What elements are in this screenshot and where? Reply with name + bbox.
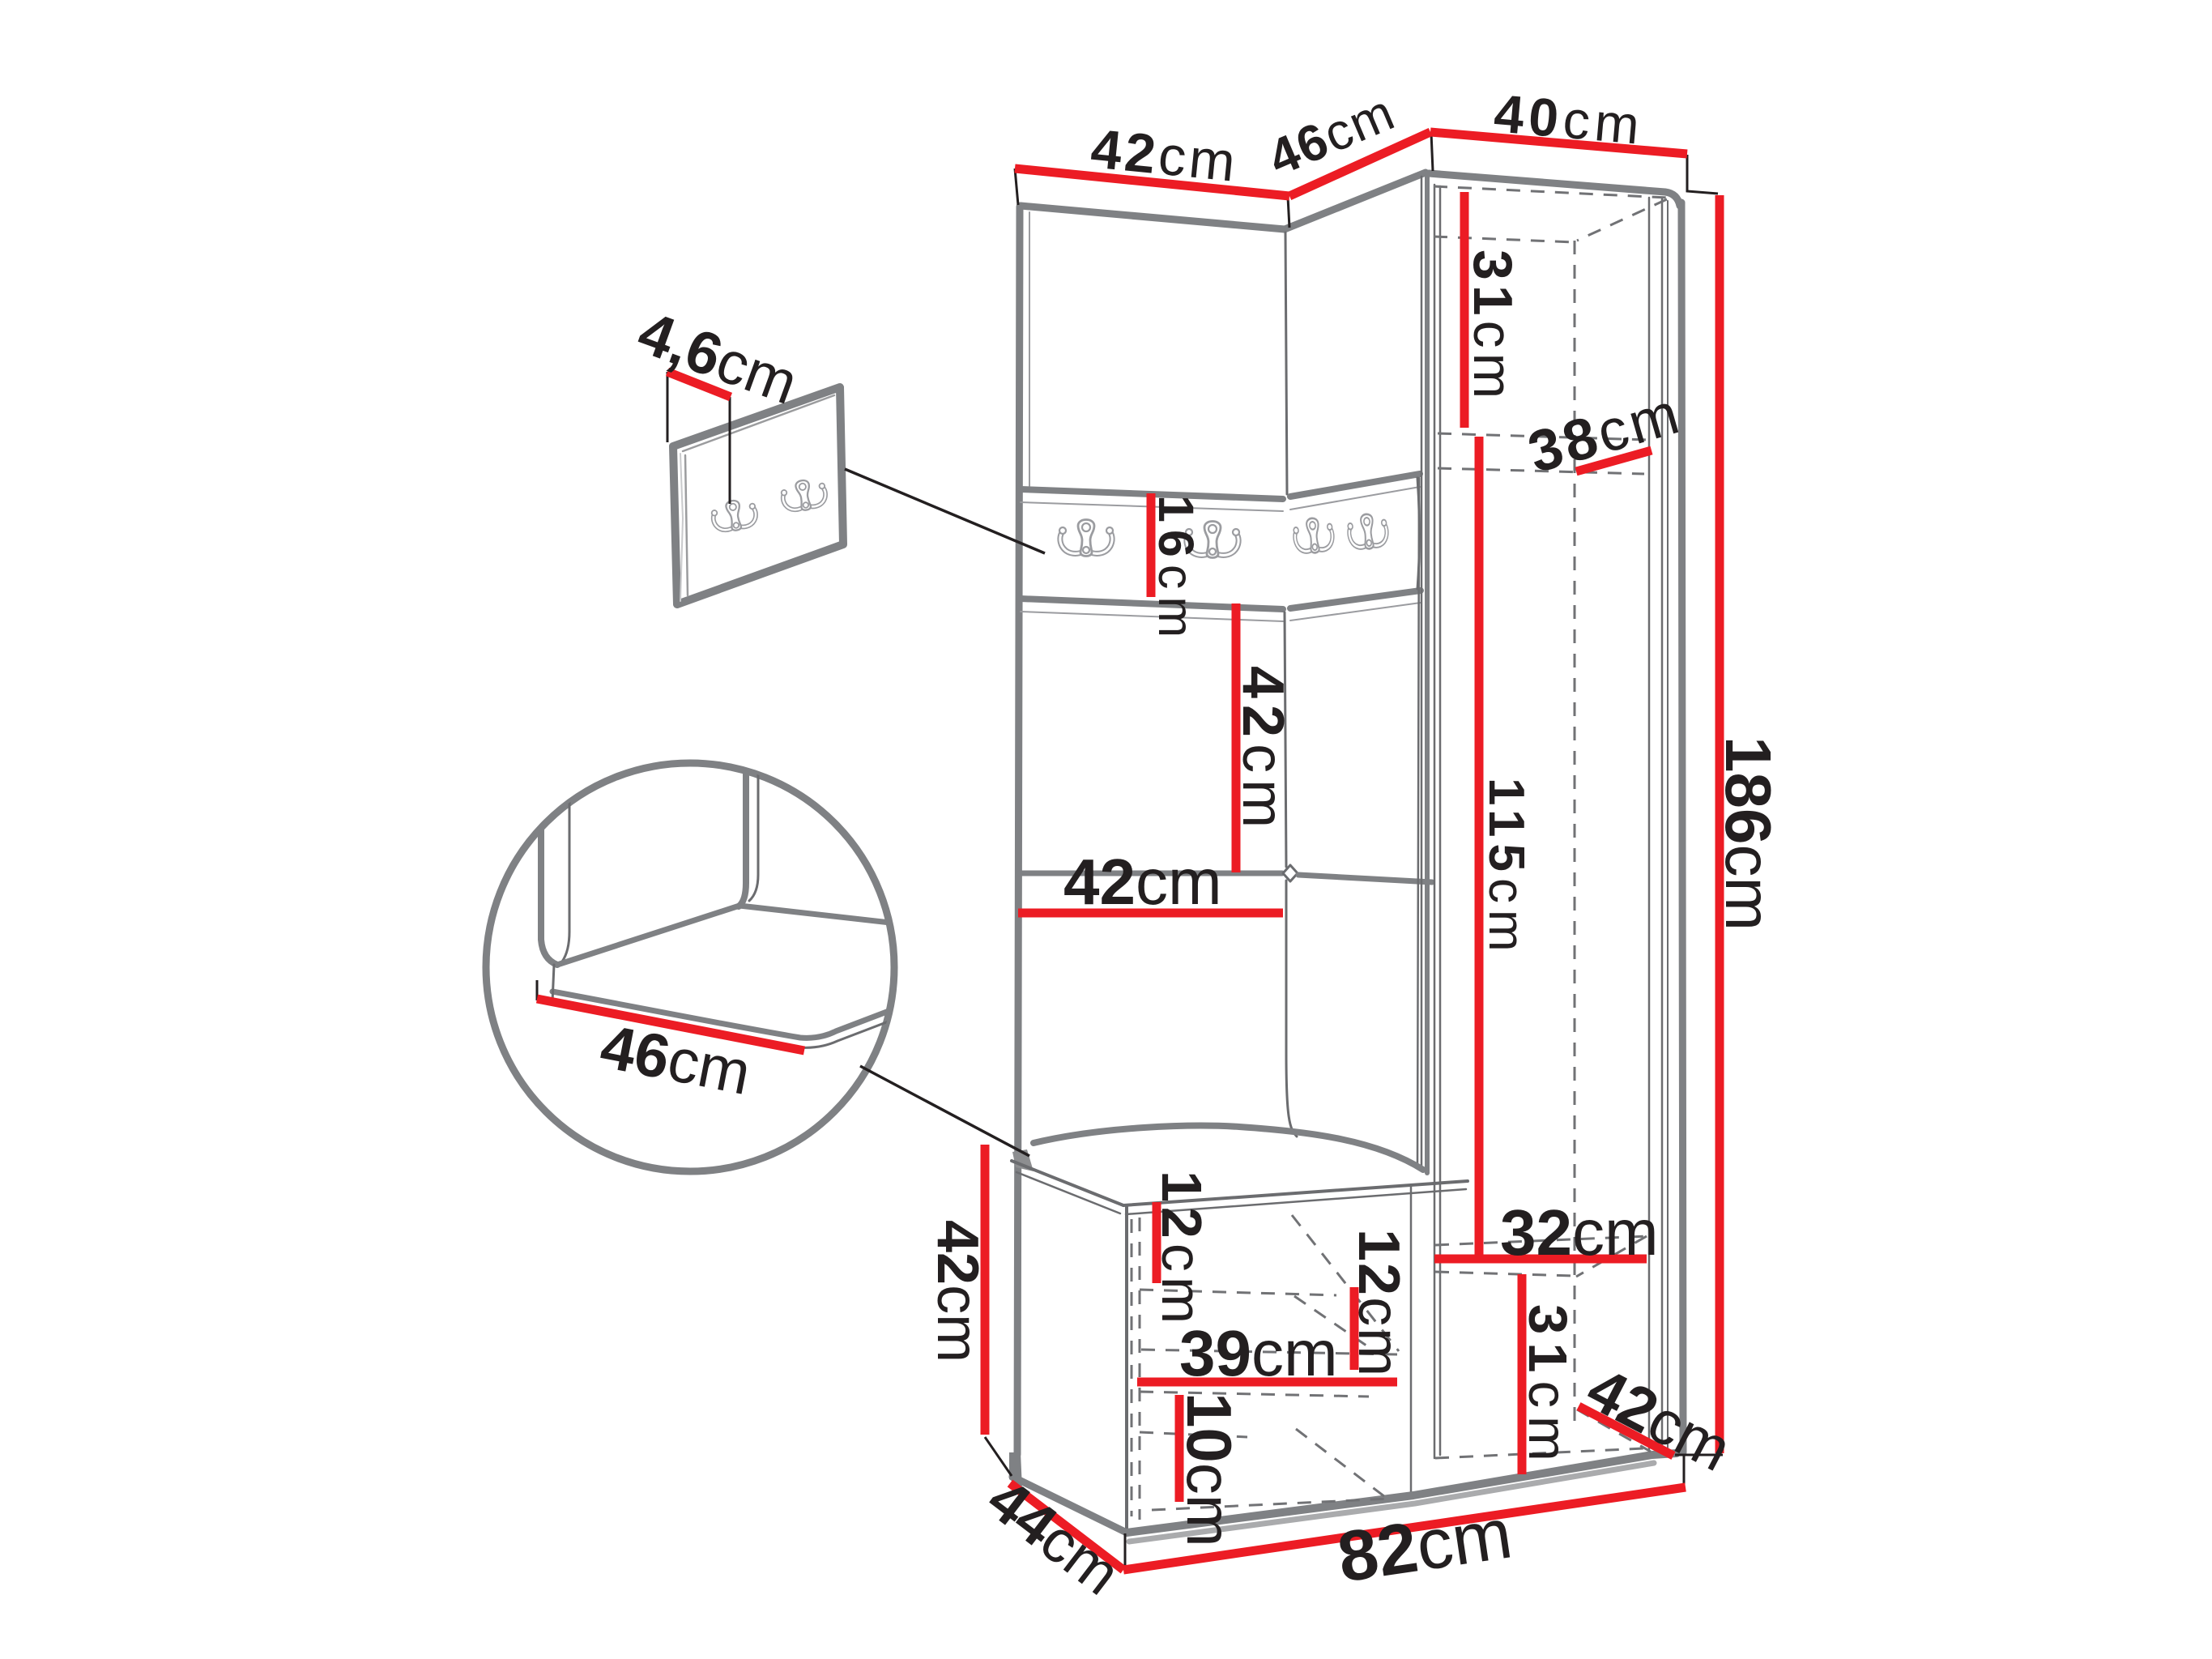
svg-text:16cm: 16cm — [1149, 495, 1204, 645]
svg-text:12cm: 12cm — [1346, 1229, 1411, 1378]
svg-text:42cm: 42cm — [925, 1220, 990, 1363]
svg-text:186cm: 186cm — [1712, 736, 1784, 931]
svg-text:12cm: 12cm — [1150, 1171, 1213, 1328]
svg-text:39cm: 39cm — [1179, 1317, 1338, 1389]
svg-text:115cm: 115cm — [1478, 778, 1534, 958]
svg-text:31cm: 31cm — [1517, 1304, 1578, 1469]
svg-text:42cm: 42cm — [1063, 846, 1222, 918]
svg-text:32cm: 32cm — [1500, 1196, 1659, 1269]
svg-text:31cm: 31cm — [1462, 249, 1524, 403]
svg-text:10cm: 10cm — [1174, 1392, 1245, 1547]
svg-text:42cm: 42cm — [1230, 666, 1295, 834]
